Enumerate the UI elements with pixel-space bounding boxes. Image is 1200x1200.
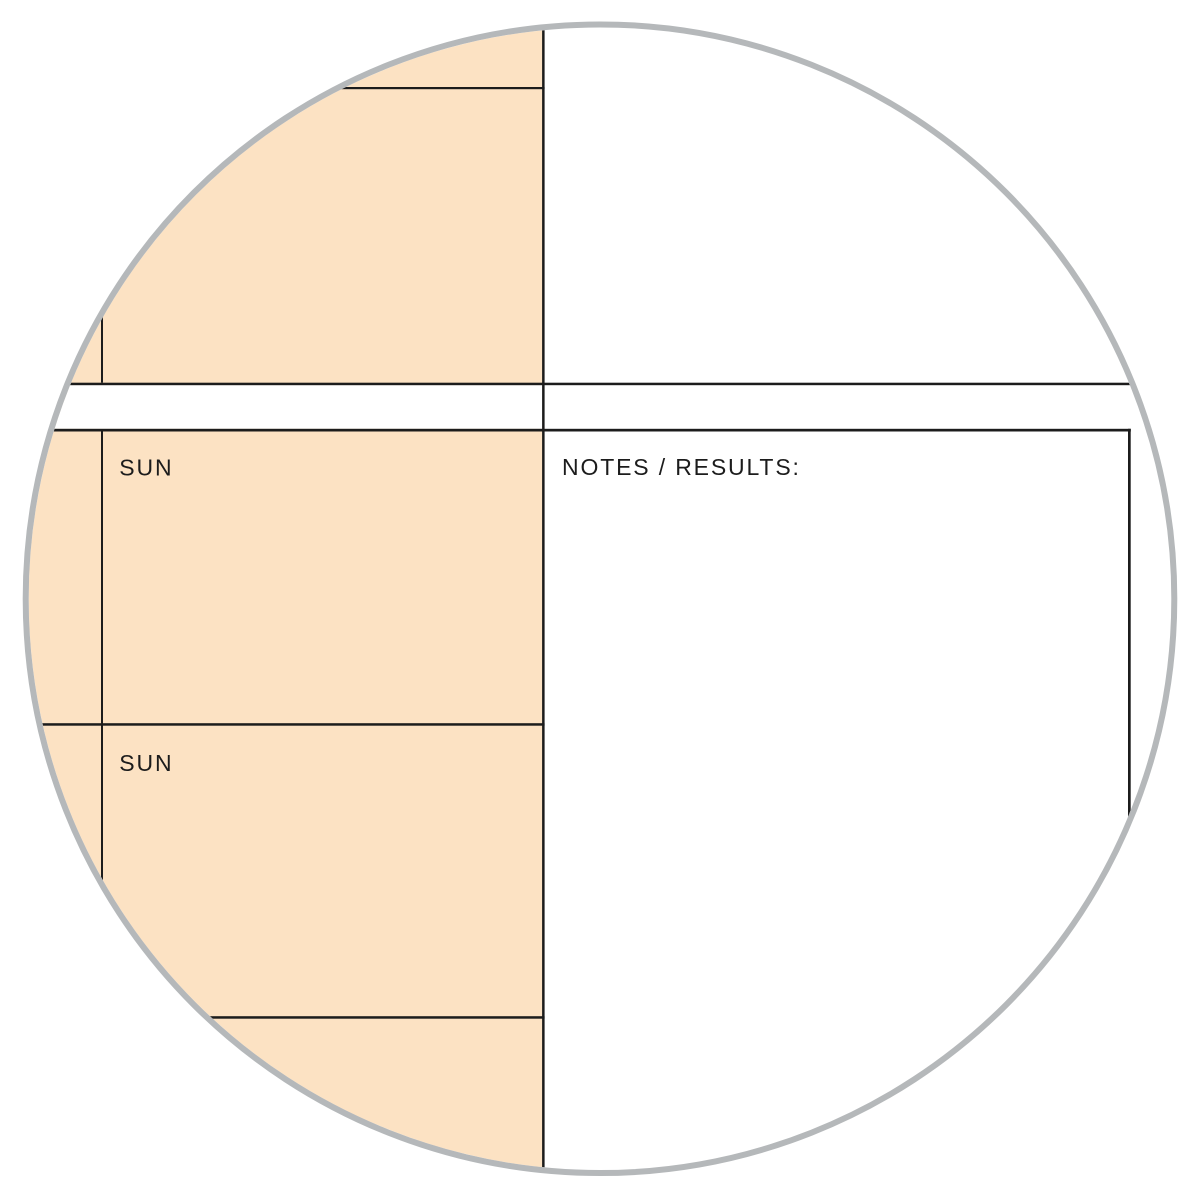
svg-text:SUN: SUN bbox=[119, 455, 173, 481]
svg-text:SUN: SUN bbox=[119, 750, 173, 776]
svg-text:NOTES / RESULTS:: NOTES / RESULTS: bbox=[562, 454, 801, 480]
